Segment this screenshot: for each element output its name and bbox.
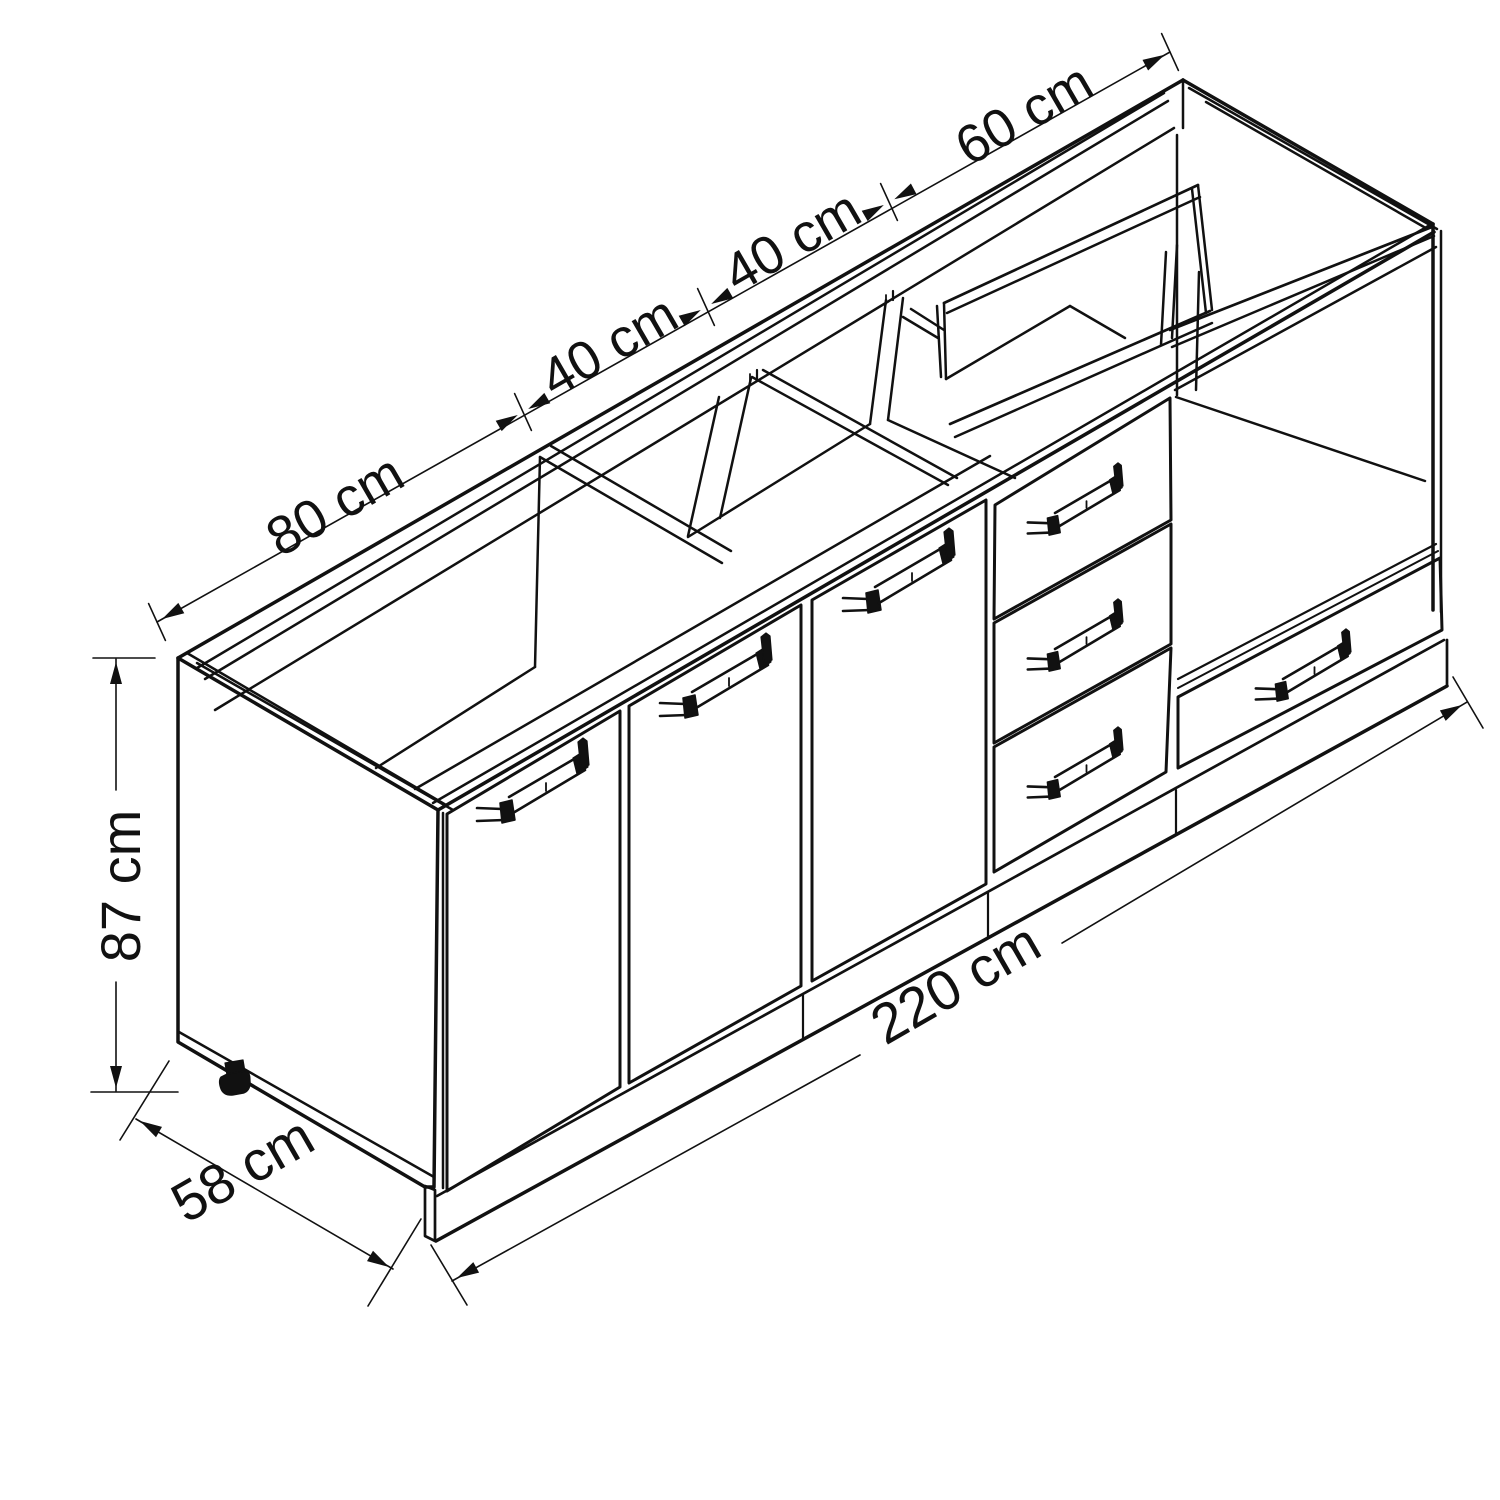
svg-text:80 cm: 80 cm: [256, 443, 413, 568]
svg-text:220 cm: 220 cm: [860, 910, 1051, 1056]
svg-text:87 cm: 87 cm: [89, 810, 152, 963]
svg-text:40 cm: 40 cm: [713, 179, 870, 304]
svg-text:60 cm: 60 cm: [945, 52, 1102, 177]
